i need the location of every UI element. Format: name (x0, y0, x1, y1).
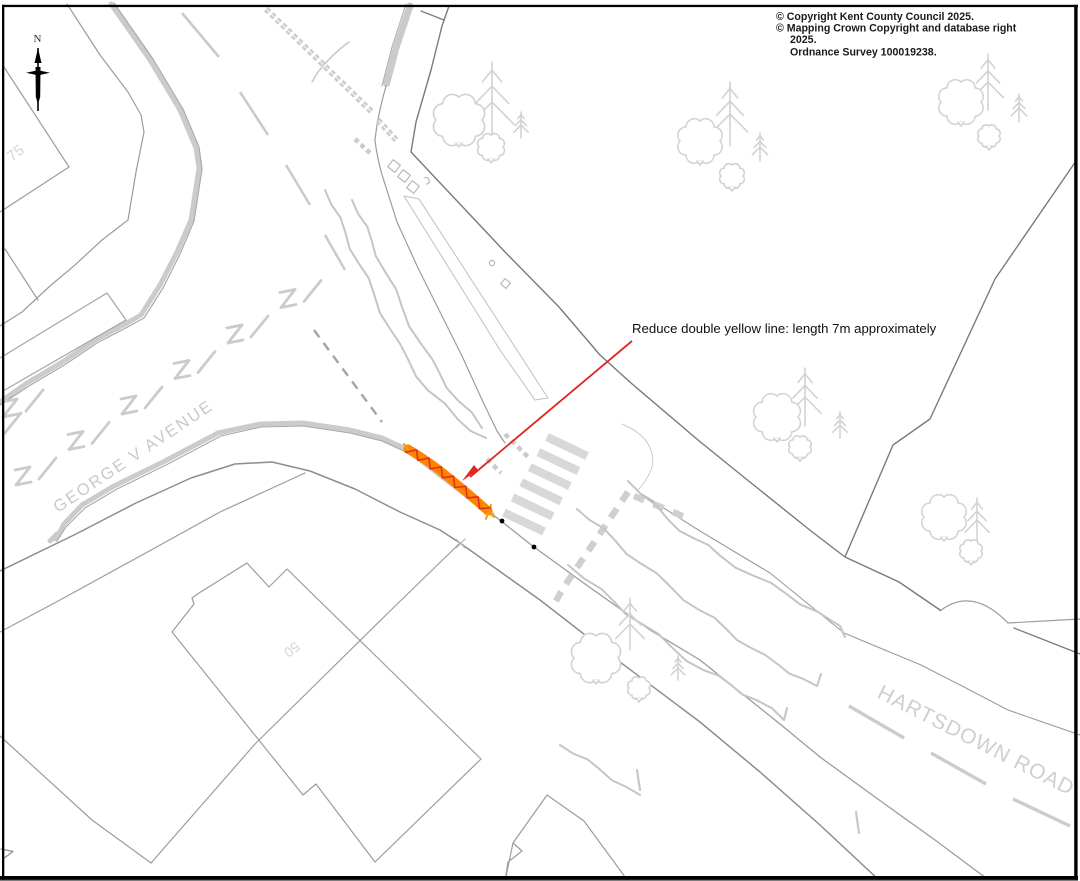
svg-text:N: N (34, 33, 42, 45)
svg-text:Ordnance Survey 100019238.: Ordnance Survey 100019238. (790, 47, 937, 59)
svg-text:© Copyright Kent County Counci: © Copyright Kent County Council 2025. (776, 11, 974, 23)
svg-text:Reduce double yellow line: len: Reduce double yellow line: length 7m app… (632, 321, 937, 336)
svg-text:2025.: 2025. (790, 34, 817, 46)
svg-text:© Mapping Crown Copyright and: © Mapping Crown Copyright and database r… (776, 23, 1017, 35)
